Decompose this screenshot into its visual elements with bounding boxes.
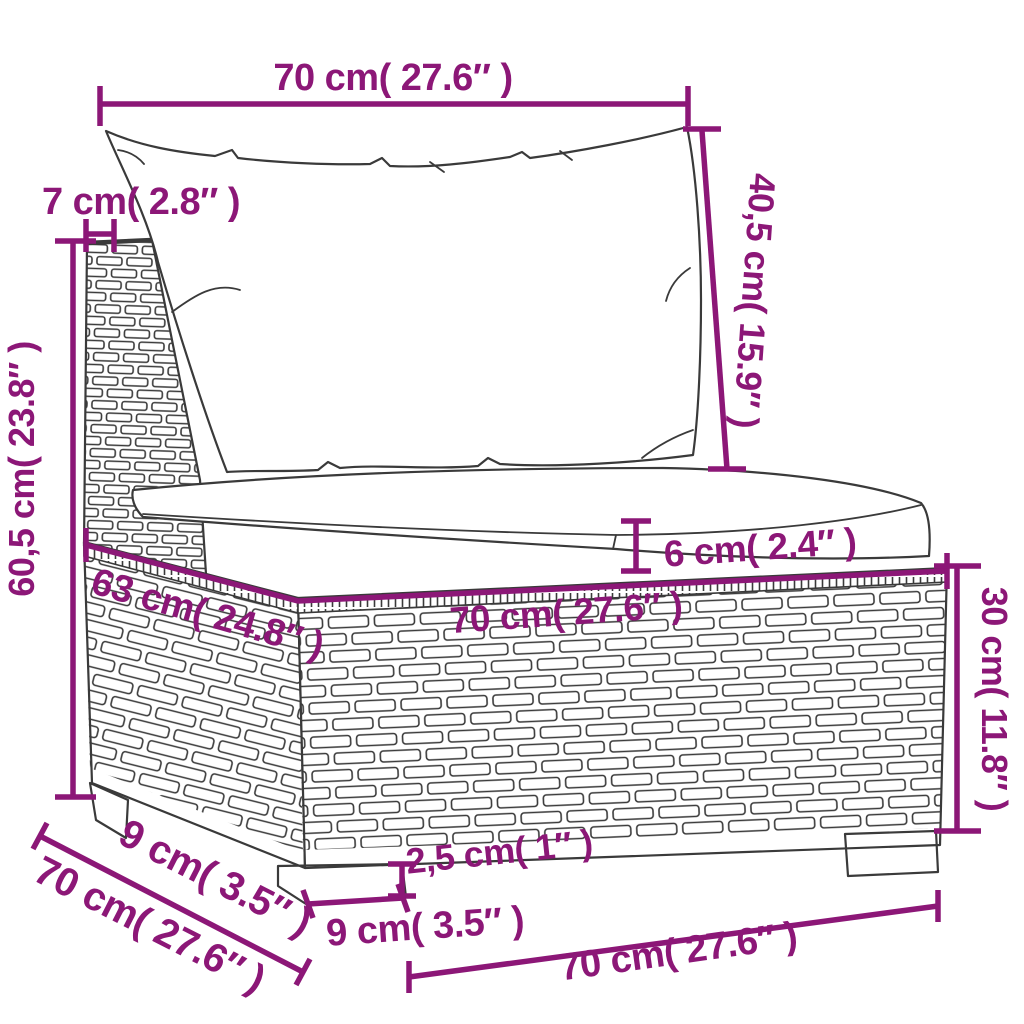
back-panel-top-rail <box>87 240 152 243</box>
dim-back-height-label: 40,5 cm( 15.9″ ) <box>725 172 784 430</box>
dimension-diagram: 70 cm( 27.6″ ) 7 cm( 2.8″ ) 60,5 cm( 23.… <box>0 0 1024 1024</box>
dim-total-height-label: 60,5 cm( 23.8″ ) <box>1 341 42 596</box>
dim-bottom-width-label: 70 cm( 27.6″ ) <box>557 915 800 990</box>
dim-total-height: 60,5 cm( 23.8″ ) <box>1 241 96 797</box>
dim-back-depth-label: 7 cm( 2.8″ ) <box>42 181 240 223</box>
dim-foot-width-label: 9 cm( 3.5″ ) <box>325 899 526 955</box>
back-cushion <box>106 127 701 472</box>
dim-top-width: 70 cm( 27.6″ ) <box>100 57 688 126</box>
dim-base-height-label: 30 cm( 11.8″ ) <box>974 587 1015 811</box>
dim-top-width-label: 70 cm( 27.6″ ) <box>273 57 512 99</box>
